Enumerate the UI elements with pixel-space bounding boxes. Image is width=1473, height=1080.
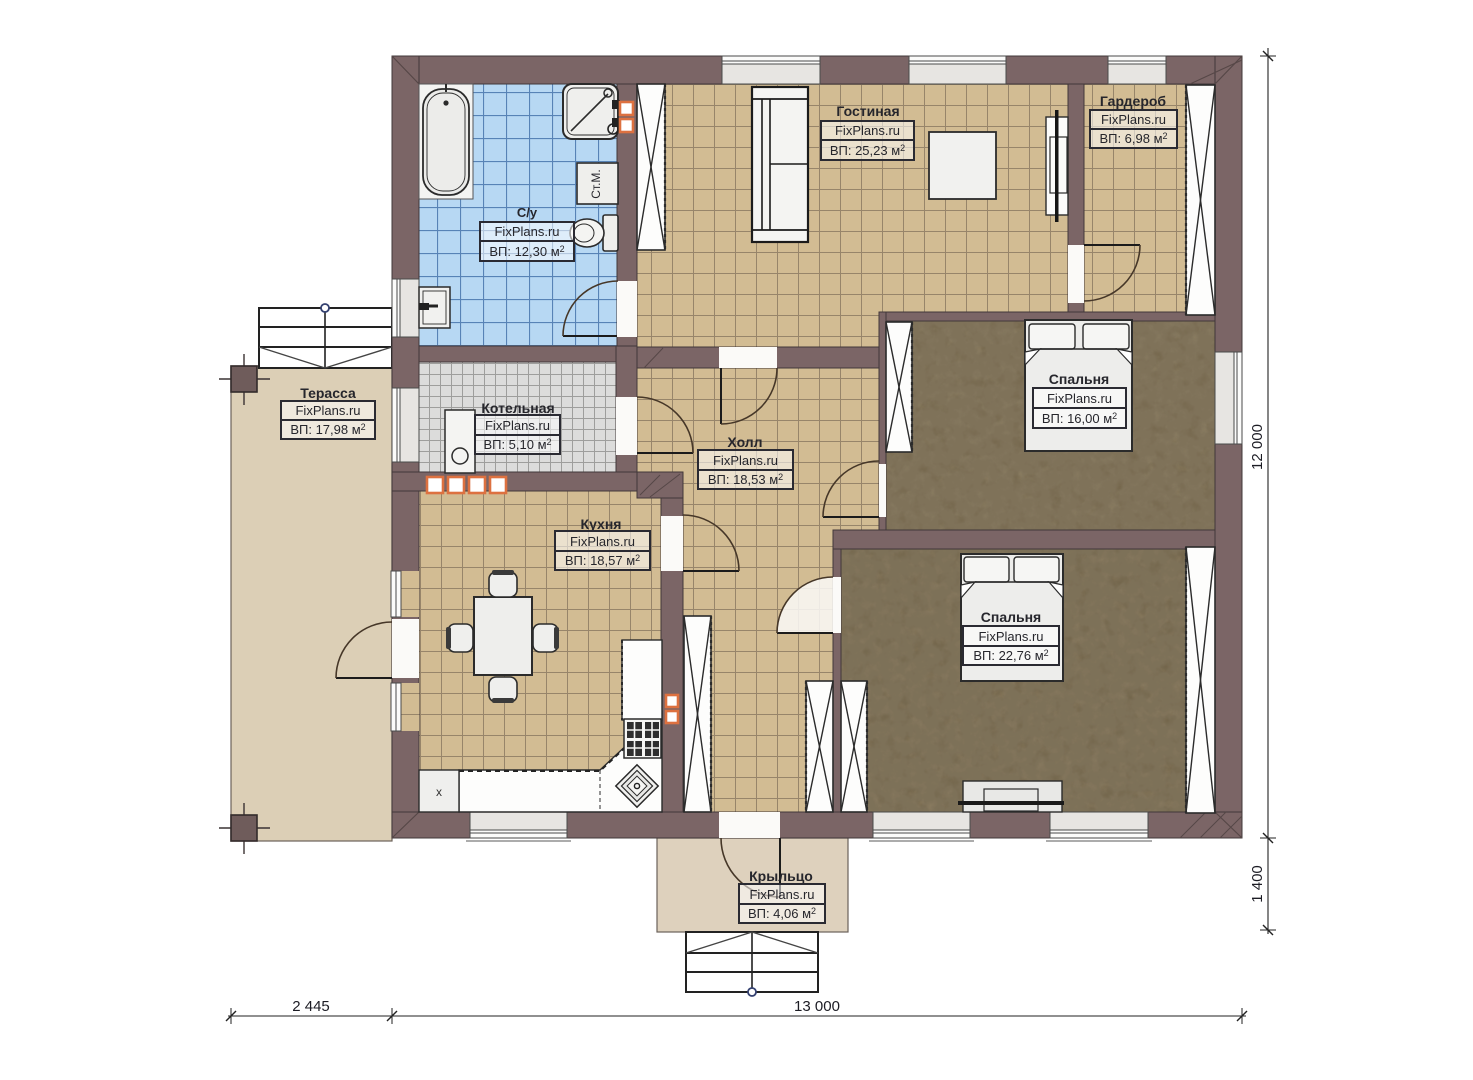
svg-text:ВП: 5,10 м2: ВП: 5,10 м2 xyxy=(483,437,551,452)
svg-text:ВП: 17,98 м2: ВП: 17,98 м2 xyxy=(290,422,365,437)
svg-text:13 000: 13 000 xyxy=(794,998,840,1015)
svg-text:Кухня: Кухня xyxy=(581,516,622,532)
svg-text:Крыльцо: Крыльцо xyxy=(749,868,813,884)
svg-text:Холл: Холл xyxy=(727,434,762,450)
svg-text:Терасса: Терасса xyxy=(300,385,356,401)
svg-text:x: x xyxy=(436,785,442,799)
svg-text:FixPlans.ru: FixPlans.ru xyxy=(494,224,559,239)
svg-text:FixPlans.ru: FixPlans.ru xyxy=(835,123,900,138)
svg-text:Спальня: Спальня xyxy=(1049,371,1109,387)
svg-text:FixPlans.ru: FixPlans.ru xyxy=(1101,112,1166,127)
svg-text:Ст.М.: Ст.М. xyxy=(589,169,603,199)
svg-text:ВП: 18,57 м2: ВП: 18,57 м2 xyxy=(565,553,640,568)
svg-text:12 000: 12 000 xyxy=(1249,424,1266,470)
svg-text:С/у: С/у xyxy=(517,205,538,220)
svg-text:Гостиная: Гостиная xyxy=(836,103,899,119)
svg-text:FixPlans.ru: FixPlans.ru xyxy=(749,887,814,902)
svg-text:Гардероб: Гардероб xyxy=(1100,93,1167,109)
svg-text:ВП: 12,30 м2: ВП: 12,30 м2 xyxy=(489,244,564,259)
svg-text:ВП: 4,06 м2: ВП: 4,06 м2 xyxy=(748,906,816,921)
svg-text:FixPlans.ru: FixPlans.ru xyxy=(713,453,778,468)
svg-text:ВП: 18,53 м2: ВП: 18,53 м2 xyxy=(708,472,783,487)
svg-text:ВП: 22,76 м2: ВП: 22,76 м2 xyxy=(973,648,1048,663)
svg-text:FixPlans.ru: FixPlans.ru xyxy=(570,534,635,549)
svg-text:ВП: 16,00 м2: ВП: 16,00 м2 xyxy=(1042,411,1117,426)
svg-text:FixPlans.ru: FixPlans.ru xyxy=(1047,391,1112,406)
svg-text:2 445: 2 445 xyxy=(292,998,330,1015)
svg-text:Котельная: Котельная xyxy=(481,400,554,416)
svg-text:1 400: 1 400 xyxy=(1249,865,1266,903)
svg-text:FixPlans.ru: FixPlans.ru xyxy=(295,403,360,418)
svg-text:ВП: 6,98 м2: ВП: 6,98 м2 xyxy=(1099,131,1167,146)
svg-text:Спальня: Спальня xyxy=(981,609,1041,625)
svg-text:FixPlans.ru: FixPlans.ru xyxy=(485,418,550,433)
svg-text:ВП: 25,23 м2: ВП: 25,23 м2 xyxy=(830,143,905,158)
svg-text:FixPlans.ru: FixPlans.ru xyxy=(978,629,1043,644)
